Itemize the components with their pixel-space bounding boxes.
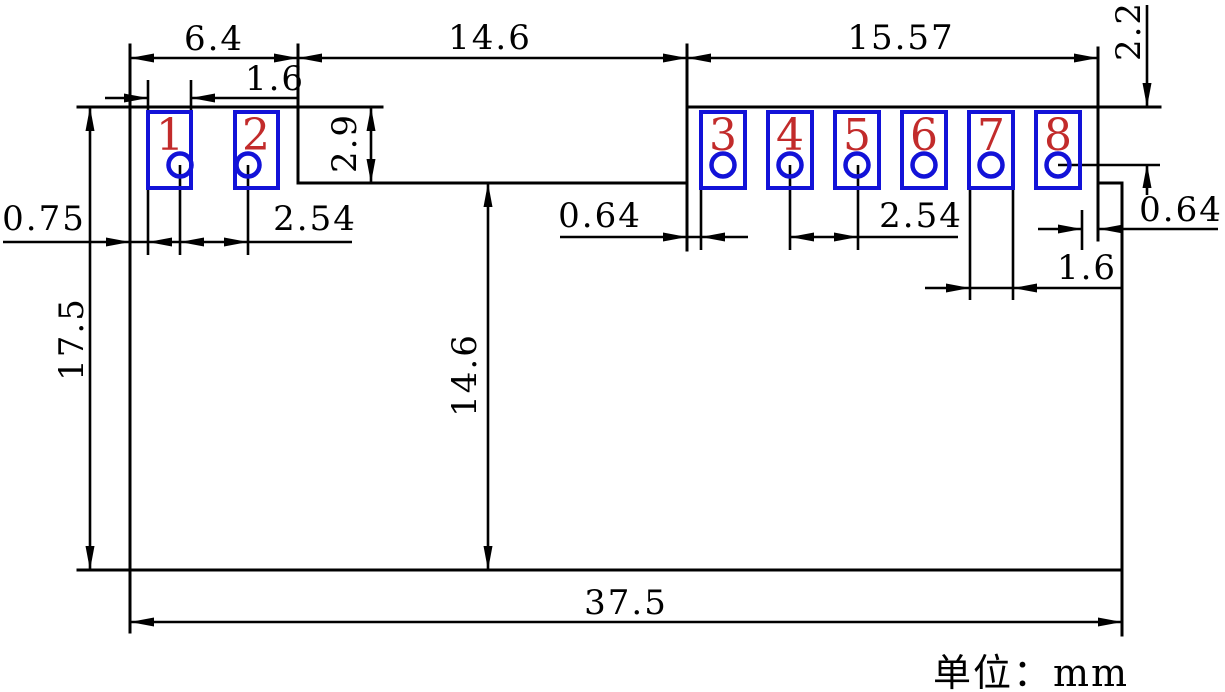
- pad-number: 1: [156, 110, 184, 161]
- dimension-lines: [3, 5, 1218, 627]
- pcb-dimension-drawing: 6.4 1.6 14.6 15.57 2.2 0.75 2.54 2.9 0.6…: [0, 0, 1225, 692]
- pad-5: 5: [835, 110, 879, 188]
- pad-number: 5: [843, 110, 871, 161]
- pads: 1 2 3 4 5 6: [148, 110, 1080, 188]
- dim-pad7-width-label: 1.6: [1057, 248, 1117, 288]
- dim-left-margin-label: 0.75: [2, 199, 86, 239]
- dim-notch-depth-label: 2.9: [325, 113, 365, 173]
- unit-note: 单位：mm: [933, 651, 1129, 692]
- dimension-labels: 6.4 1.6 14.6 15.57 2.2 0.75 2.54 2.9 0.6…: [2, 1, 1223, 623]
- pad-3: 3: [701, 110, 745, 188]
- pad-number: 8: [1044, 110, 1072, 161]
- pad-1: 1: [148, 110, 192, 188]
- dim-pads38-span-label: 15.57: [847, 18, 954, 58]
- dim-notch-bottom-label: 14.6: [445, 333, 485, 417]
- dim-pin8-hole-top-label: 2.2: [1109, 1, 1149, 61]
- pad-2: 2: [235, 110, 278, 188]
- dimension-shafts-path: [3, 5, 1218, 622]
- pad-number: 6: [910, 110, 938, 161]
- pad-number: 3: [709, 110, 737, 161]
- dim-holes45-pitch-label: 2.54: [879, 196, 963, 236]
- dim-notch-pad3-gap-label: 0.64: [558, 196, 642, 236]
- dim-pad1-width-label: 1.6: [245, 59, 305, 99]
- dim-total-width-label: 37.5: [584, 583, 668, 623]
- pad-7: 7: [969, 110, 1013, 188]
- dim-pad8-edge-gap-label: 0.64: [1139, 190, 1223, 230]
- dim-holes12-pitch-label: 2.54: [273, 199, 357, 239]
- dim-notch-width-label: 14.6: [448, 18, 532, 58]
- pad-number: 7: [977, 110, 1005, 161]
- pad-number: 2: [242, 110, 270, 161]
- pad-6: 6: [902, 110, 946, 188]
- dim-body-height-label: 17.5: [52, 297, 92, 381]
- pad-8: 8: [1036, 110, 1080, 188]
- pad-number: 4: [776, 110, 804, 161]
- pad-4: 4: [768, 110, 812, 188]
- dim-pads12-span-label: 6.4: [184, 19, 244, 59]
